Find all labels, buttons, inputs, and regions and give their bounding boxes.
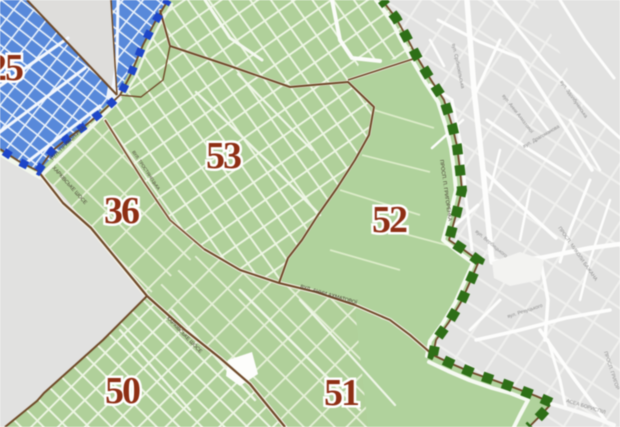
svg-text:50: 50 [105, 370, 140, 412]
svg-text:52: 52 [372, 199, 407, 241]
svg-text:51: 51 [324, 372, 359, 414]
svg-text:25: 25 [0, 47, 23, 89]
svg-text:36: 36 [104, 190, 139, 232]
svg-text:53: 53 [206, 135, 241, 177]
